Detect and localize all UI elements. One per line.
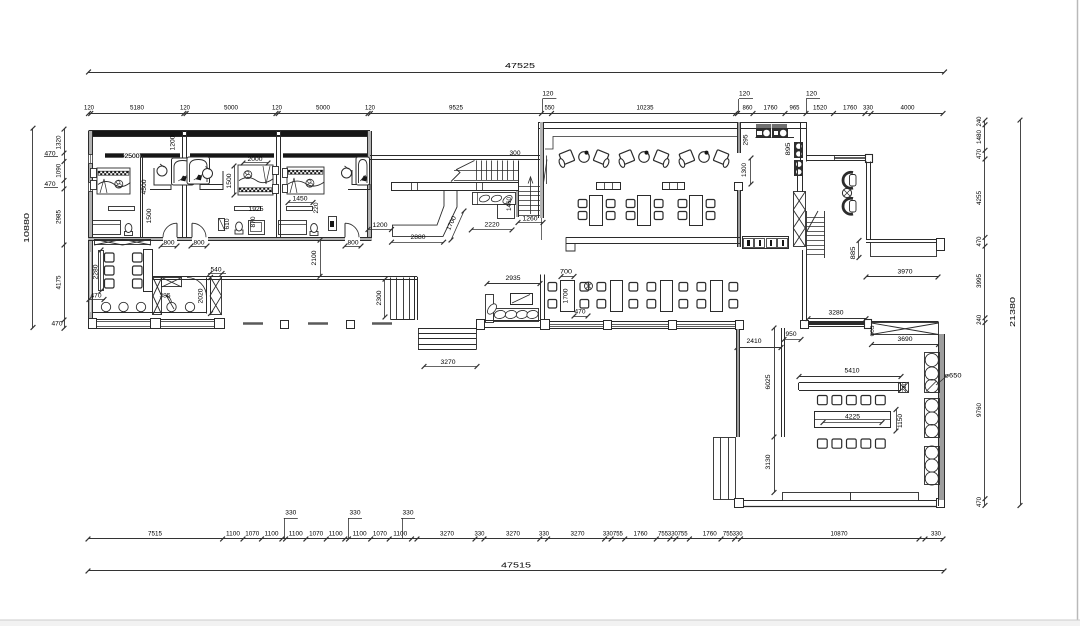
svg-text:755: 755	[658, 531, 668, 538]
svg-text:5410: 5410	[845, 368, 861, 375]
svg-text:120: 120	[739, 91, 751, 98]
svg-text:1070: 1070	[309, 531, 323, 538]
svg-text:610: 610	[225, 218, 231, 230]
svg-text:1090: 1090	[56, 163, 63, 177]
svg-text:950: 950	[786, 331, 798, 338]
svg-text:120: 120	[542, 91, 554, 98]
svg-text:1260: 1260	[523, 216, 539, 223]
svg-text:120: 120	[365, 105, 375, 112]
svg-text:1760: 1760	[703, 531, 717, 538]
svg-text:1200: 1200	[170, 135, 177, 151]
svg-text:1480: 1480	[976, 130, 983, 144]
svg-text:330: 330	[931, 531, 941, 538]
svg-text:2880: 2880	[411, 234, 427, 241]
svg-text:885: 885	[851, 246, 857, 260]
svg-text:5000: 5000	[316, 105, 330, 112]
svg-text:300: 300	[510, 150, 522, 157]
svg-text:2985: 2985	[56, 210, 63, 224]
svg-text:3970: 3970	[898, 269, 914, 276]
svg-text:21380: 21380	[1010, 297, 1017, 327]
svg-text:1200: 1200	[373, 222, 389, 229]
svg-text:10235: 10235	[637, 105, 654, 112]
svg-text:1100: 1100	[289, 531, 303, 538]
svg-text:295: 295	[744, 134, 750, 146]
svg-text:3280: 3280	[829, 310, 845, 317]
svg-text:470: 470	[976, 236, 983, 246]
svg-text:6025: 6025	[765, 374, 772, 390]
svg-text:800: 800	[348, 240, 360, 247]
svg-text:47515: 47515	[501, 563, 531, 570]
svg-text:1460: 1460	[507, 196, 513, 211]
svg-text:470: 470	[976, 497, 983, 507]
svg-text:2500: 2500	[125, 153, 141, 160]
svg-text:550: 550	[545, 105, 555, 112]
svg-text:860: 860	[743, 105, 753, 112]
svg-text:3690: 3690	[898, 336, 914, 343]
svg-text:470: 470	[52, 321, 64, 328]
svg-text:755: 755	[613, 531, 623, 538]
svg-text:1500: 1500	[226, 173, 233, 189]
svg-text:3270: 3270	[440, 531, 454, 538]
svg-text:330: 330	[539, 531, 549, 538]
svg-text:10880: 10880	[24, 213, 31, 243]
svg-text:605: 605	[870, 326, 876, 337]
svg-text:47525: 47525	[505, 63, 535, 70]
svg-text:1100: 1100	[353, 531, 367, 538]
svg-text:1300: 1300	[742, 162, 748, 177]
svg-text:470: 470	[45, 181, 57, 188]
svg-text:330: 330	[403, 510, 415, 517]
svg-text:1100: 1100	[226, 531, 240, 538]
svg-text:330: 330	[350, 510, 362, 517]
svg-text:1070: 1070	[245, 531, 259, 538]
svg-text:9525: 9525	[449, 105, 463, 112]
svg-text:2300: 2300	[376, 290, 383, 306]
svg-text:3995: 3995	[976, 274, 983, 288]
svg-text:1100: 1100	[329, 531, 343, 538]
svg-text:755: 755	[678, 531, 688, 538]
svg-text:1100: 1100	[393, 531, 407, 538]
svg-text:330: 330	[475, 531, 485, 538]
svg-text:240: 240	[976, 116, 983, 126]
svg-text:3270: 3270	[571, 531, 585, 538]
svg-text:1760: 1760	[634, 531, 648, 538]
svg-text:2220: 2220	[485, 222, 501, 229]
svg-text:800: 800	[194, 240, 206, 247]
svg-text:330: 330	[733, 531, 743, 538]
svg-text:1320: 1320	[56, 135, 63, 149]
svg-text:4255: 4255	[976, 191, 983, 205]
svg-text:470: 470	[91, 293, 103, 300]
svg-text:3270: 3270	[506, 531, 520, 538]
svg-text:330: 330	[863, 105, 873, 112]
svg-text:1150: 1150	[897, 413, 904, 428]
svg-text:120: 120	[180, 105, 190, 112]
svg-text:1760: 1760	[764, 105, 778, 112]
svg-text:220: 220	[902, 382, 908, 392]
svg-text:800: 800	[164, 240, 176, 247]
svg-text:220: 220	[314, 202, 320, 214]
svg-text:1700: 1700	[563, 288, 570, 304]
svg-text:1520: 1520	[813, 105, 827, 112]
svg-text:5180: 5180	[130, 105, 144, 112]
svg-text:7515: 7515	[148, 531, 162, 538]
svg-text:2020: 2020	[198, 288, 205, 304]
svg-text:2280: 2280	[93, 264, 100, 280]
svg-text:4000: 4000	[901, 105, 915, 112]
svg-text:1500: 1500	[146, 208, 153, 224]
svg-text:120: 120	[84, 105, 94, 112]
svg-text:2100: 2100	[311, 250, 318, 266]
svg-text:1760: 1760	[843, 105, 857, 112]
svg-text:965: 965	[790, 105, 800, 112]
svg-text:895: 895	[786, 142, 792, 156]
svg-text:5000: 5000	[224, 105, 238, 112]
svg-text:870: 870	[251, 216, 257, 228]
svg-text:1070: 1070	[373, 531, 387, 538]
svg-text:2000: 2000	[248, 156, 264, 163]
svg-text:240: 240	[976, 315, 983, 325]
svg-text:540: 540	[211, 267, 223, 274]
svg-text:10870: 10870	[831, 531, 848, 538]
svg-text:2935: 2935	[506, 275, 522, 282]
svg-text:330: 330	[285, 510, 297, 517]
svg-text:4175: 4175	[56, 275, 63, 289]
svg-text:3130: 3130	[765, 454, 772, 470]
svg-text:2410: 2410	[747, 338, 763, 345]
svg-text:120: 120	[806, 91, 818, 98]
svg-text:1450: 1450	[293, 196, 309, 203]
svg-text:4500: 4500	[141, 179, 148, 195]
svg-text:9760: 9760	[976, 403, 983, 417]
svg-text:330: 330	[603, 531, 613, 538]
svg-text:120: 120	[272, 105, 282, 112]
svg-text:700: 700	[560, 269, 573, 276]
svg-text:470: 470	[976, 149, 983, 159]
svg-text:1925: 1925	[249, 206, 265, 213]
svg-text:3270: 3270	[441, 359, 457, 366]
svg-text:1100: 1100	[265, 531, 279, 538]
svg-text:4225: 4225	[845, 414, 861, 421]
